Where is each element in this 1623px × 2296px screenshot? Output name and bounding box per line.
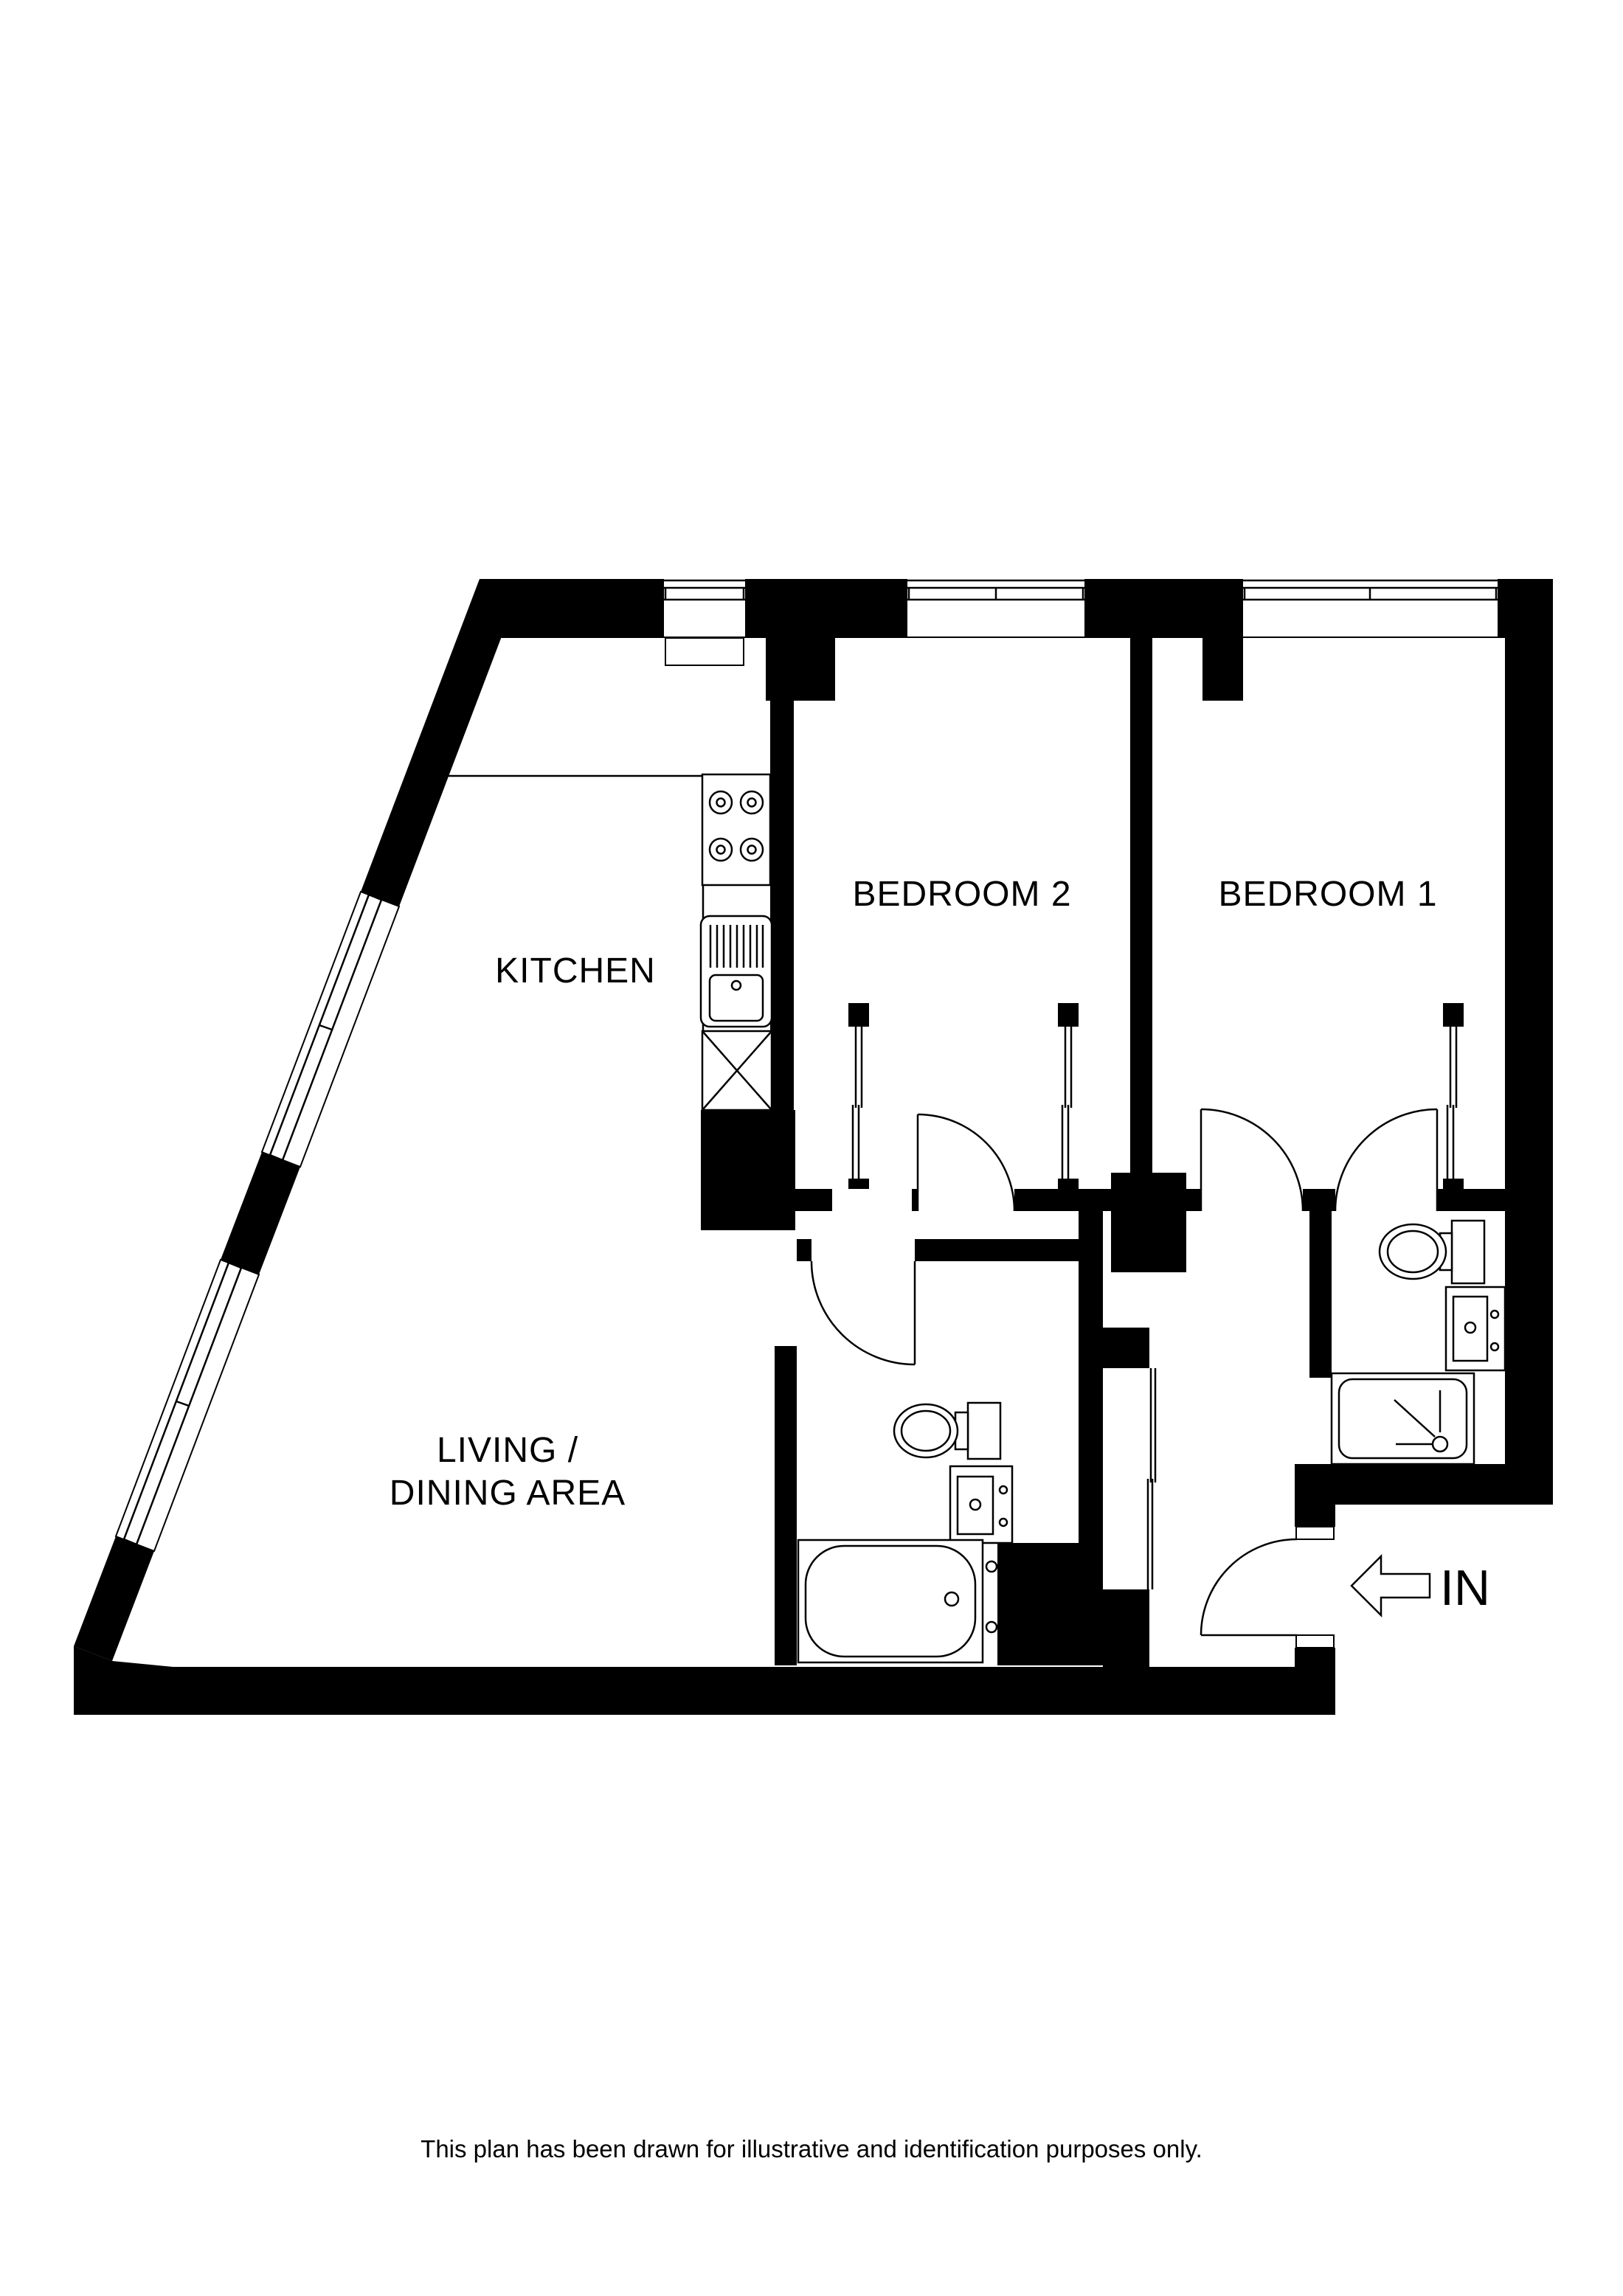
kitchen-zone-boundary [448, 776, 703, 1031]
wardrobe-bedroom2-west [853, 1027, 862, 1179]
appliance-space-symbol [702, 1031, 772, 1110]
floor-plan: KITCHEN BEDROOM 2 BEDROOM 1 LIVING / DIN… [0, 0, 1623, 2296]
bedroom2-label: BEDROOM 2 [852, 875, 1071, 914]
toilet-ensuite-symbol [1380, 1221, 1484, 1283]
door-ensuite [1335, 1109, 1437, 1211]
window-bedroom2 [907, 579, 1084, 638]
living-label-line1: LIVING / [437, 1431, 578, 1470]
door-bedroom2 [918, 1114, 1014, 1211]
bath-symbol [798, 1540, 997, 1662]
door-bathroom [811, 1261, 915, 1364]
door-bedroom1 [1201, 1109, 1303, 1211]
hob-symbol [702, 774, 770, 885]
shower-symbol [1332, 1373, 1474, 1464]
entrance-arrow-icon [1352, 1556, 1430, 1615]
disclaimer-text: This plan has been drawn for illustrativ… [421, 2135, 1202, 2163]
entrance-label: IN [1440, 1560, 1490, 1616]
toilet-main-symbol [894, 1403, 1000, 1459]
sink-symbol [701, 916, 772, 1027]
bedroom1-label: BEDROOM 1 [1218, 875, 1437, 914]
window-diagonal-lower [116, 1260, 259, 1551]
kitchen-label: KITCHEN [495, 951, 656, 991]
window-diagonal-upper [262, 892, 399, 1167]
window-bedroom1 [1243, 579, 1498, 638]
window-kitchen [664, 579, 745, 665]
door-entrance [1201, 1527, 1334, 1648]
floor-plan-page: KITCHEN BEDROOM 2 BEDROOM 1 LIVING / DIN… [0, 0, 1623, 2296]
wardrobe-bedroom1 [1447, 1027, 1456, 1179]
cupboard-sliding-door [1148, 1368, 1155, 1589]
vanity-main-symbol [950, 1466, 1012, 1543]
vanity-ensuite-symbol [1446, 1287, 1505, 1370]
wardrobe-bedroom2-east [1062, 1027, 1071, 1179]
living-label-line2: DINING AREA [390, 1474, 626, 1513]
